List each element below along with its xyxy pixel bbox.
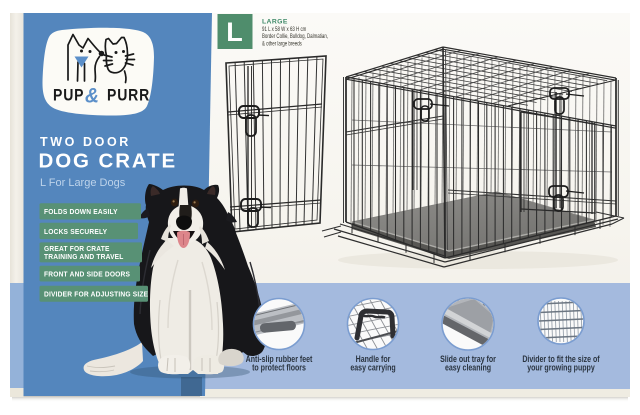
svg-text:LARGE: LARGE <box>262 19 288 26</box>
svg-text:GREAT FOR CRATE: GREAT FOR CRATE <box>44 246 110 253</box>
svg-text:easy carrying: easy carrying <box>350 363 395 373</box>
svg-text:FRONT AND SIDE DOORS: FRONT AND SIDE DOORS <box>44 272 130 279</box>
svg-text:DOG CRATE: DOG CRATE <box>39 150 178 173</box>
svg-text:PUP: PUP <box>53 86 84 104</box>
svg-text:TRAINING AND TRAVEL: TRAINING AND TRAVEL <box>44 254 124 261</box>
svg-text:FOLDS DOWN EASILY: FOLDS DOWN EASILY <box>44 209 118 216</box>
svg-text:Border Collie, Bulldog, Dalmat: Border Collie, Bulldog, Dalmatian, <box>262 34 328 41</box>
svg-text:DIVIDER FOR ADJUSTING SIZE: DIVIDER FOR ADJUSTING SIZE <box>44 292 148 299</box>
svg-text:& other large breeds: & other large breeds <box>262 41 302 48</box>
svg-text:TWO DOOR: TWO DOOR <box>40 135 131 149</box>
svg-text:&: & <box>85 85 99 108</box>
svg-text:easy cleaning: easy cleaning <box>445 363 491 373</box>
svg-text:your growing puppy: your growing puppy <box>527 363 595 373</box>
svg-text:91 L x 58 W x 63 H cm: 91 L x 58 W x 63 H cm <box>262 26 307 33</box>
svg-text:to protect floors: to protect floors <box>252 363 306 373</box>
svg-text:PURR: PURR <box>107 86 150 104</box>
svg-text:L: L <box>226 17 243 47</box>
svg-text:L For Large Dogs: L For Large Dogs <box>40 177 126 189</box>
svg-text:LOCKS SECURELY: LOCKS SECURELY <box>44 229 108 236</box>
